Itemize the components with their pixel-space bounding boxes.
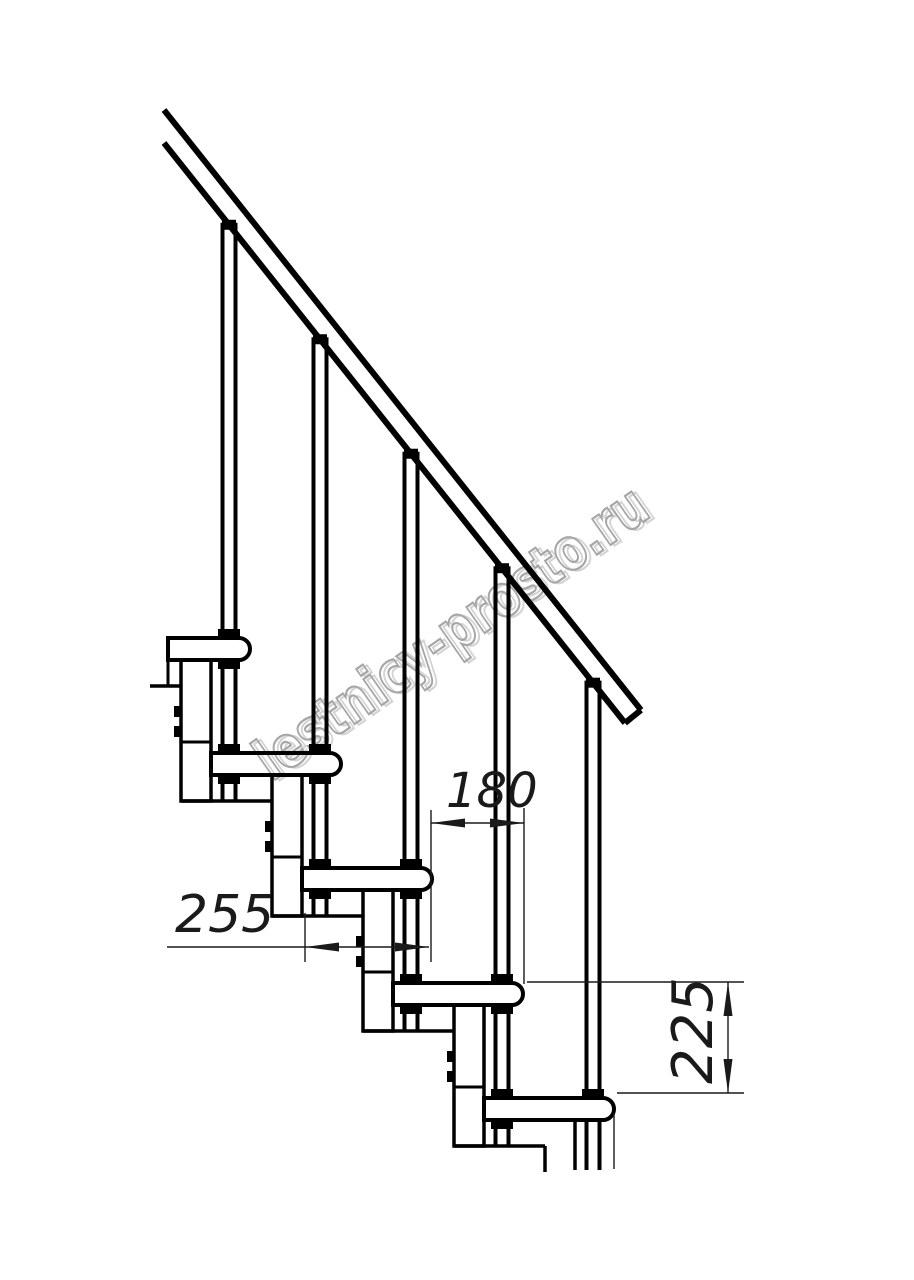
- support-column: [181, 660, 211, 801]
- dimension-label-225: 225: [661, 977, 726, 1084]
- tread: [393, 983, 523, 1005]
- bolt-tab: [174, 706, 181, 717]
- post-foot-flange: [400, 974, 422, 983]
- tread: [484, 1098, 614, 1120]
- dimension-arrow: [431, 819, 465, 828]
- bolt-tab: [174, 726, 181, 737]
- post-flange: [218, 661, 240, 669]
- post-foot-flange: [309, 859, 331, 868]
- baluster-foot-flange: [582, 1089, 604, 1098]
- bolt-tab: [447, 1051, 454, 1062]
- baluster-foot-flange: [218, 629, 240, 638]
- post-flange: [491, 1121, 513, 1129]
- staircase-drawing: 180255225lestnicy-prosto.rulestnicy-pros…: [0, 0, 914, 1280]
- dimension-label-255: 255: [175, 885, 274, 945]
- support-column: [454, 1005, 484, 1146]
- baluster-foot-flange: [400, 859, 422, 868]
- bolt-tab: [447, 1071, 454, 1082]
- post-foot-flange: [491, 1089, 513, 1098]
- post-flange: [218, 776, 240, 784]
- bolt-tab: [265, 841, 272, 852]
- bolt-tab: [356, 936, 363, 947]
- tread: [168, 638, 250, 660]
- watermark: lestnicy-prosto.rulestnicy-prosto.ru: [241, 469, 665, 796]
- drawing-svg: 180255225lestnicy-prosto.rulestnicy-pros…: [0, 0, 914, 1280]
- support-column: [363, 890, 393, 1031]
- baluster-foot-flange: [491, 974, 513, 983]
- dimension-label-180: 180: [446, 763, 538, 819]
- dimension-arrow: [305, 943, 339, 952]
- tread: [302, 868, 432, 890]
- bolt-tab: [265, 821, 272, 832]
- post-flange: [309, 891, 331, 899]
- post-flange: [400, 1006, 422, 1014]
- post-foot-flange: [218, 744, 240, 753]
- support-column: [272, 775, 302, 916]
- dimension-arrow: [395, 943, 429, 952]
- post-flange: [400, 891, 422, 899]
- handrail-end-cut: [625, 710, 641, 723]
- bolt-tab: [356, 956, 363, 967]
- post-flange: [491, 1006, 513, 1014]
- post-flange: [309, 776, 331, 784]
